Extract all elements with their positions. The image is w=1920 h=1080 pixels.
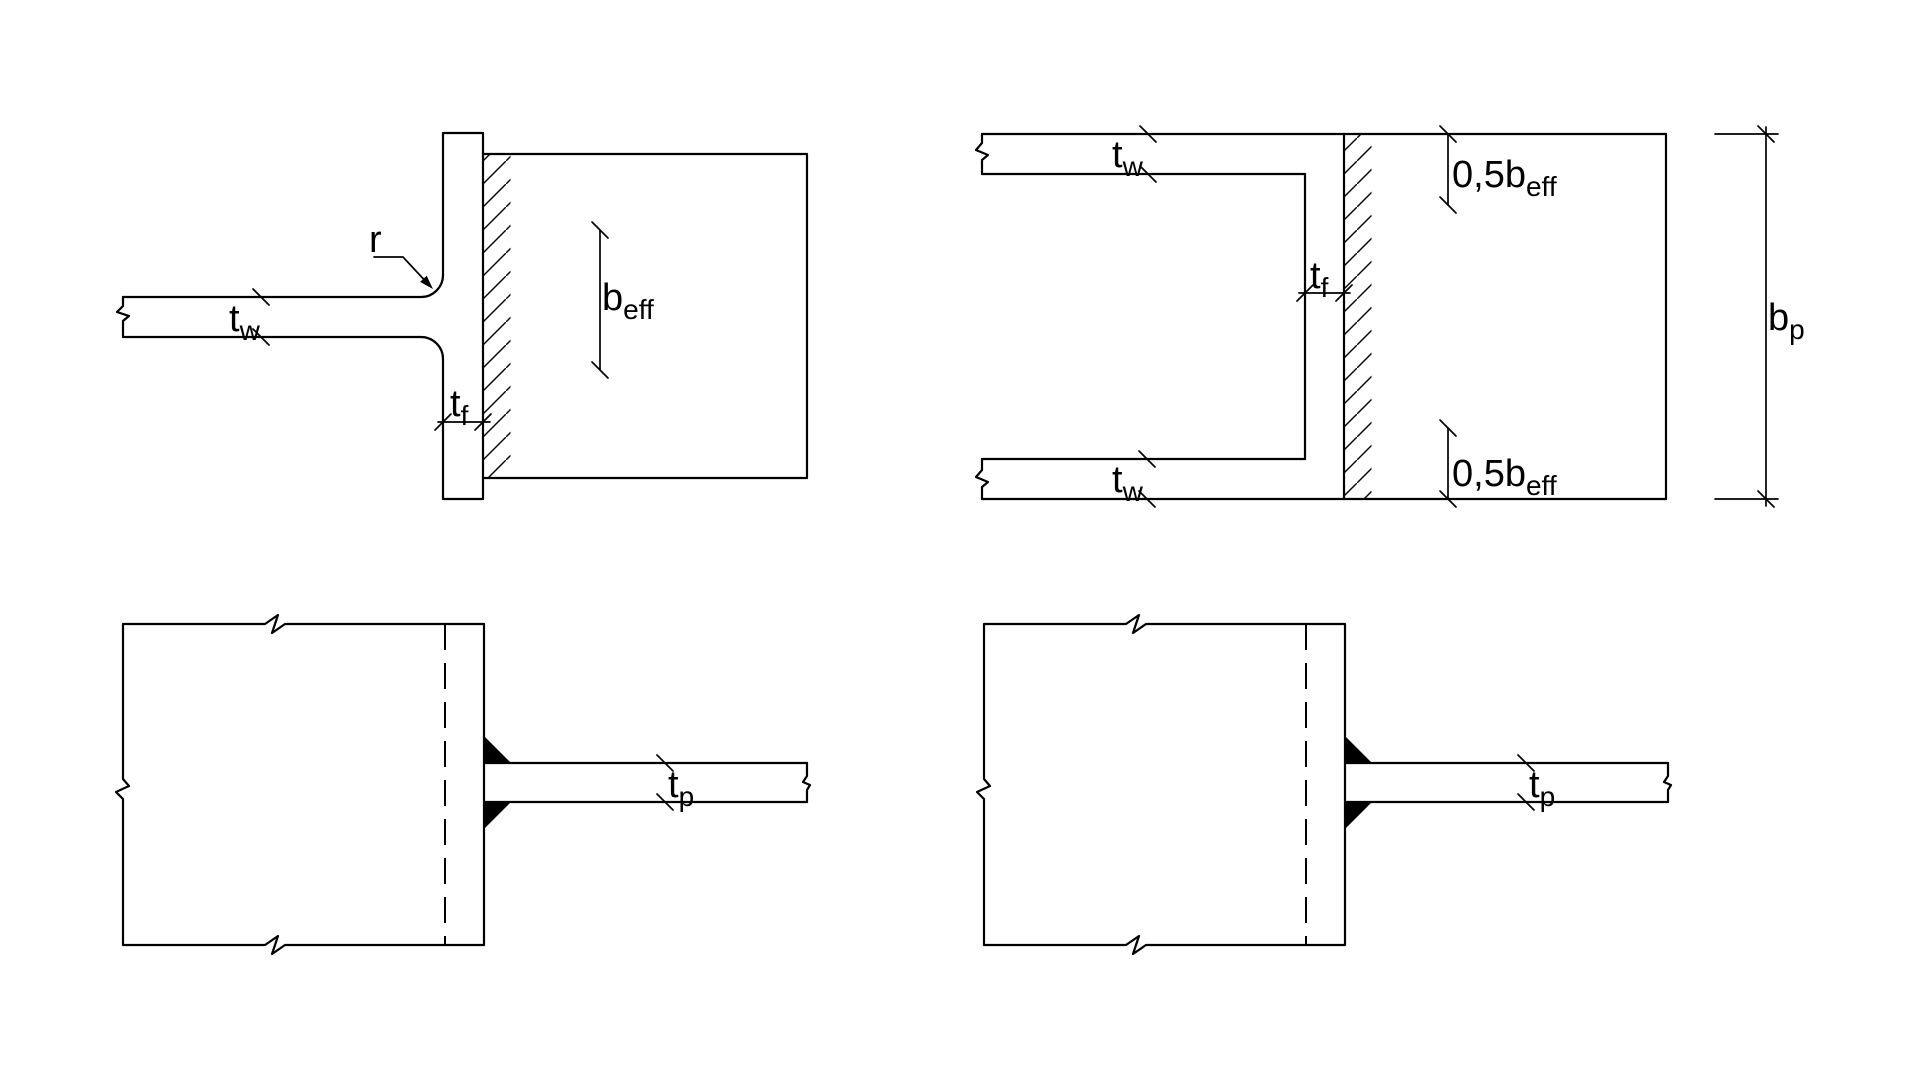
web-break-edge: [117, 297, 129, 337]
figure-i-section-weld: tw r beff tf: [117, 133, 807, 499]
hatch-weld-contact-zone: [1345, 134, 1372, 499]
label-half-effective-width-bottom: 0,5beff: [1452, 453, 1557, 501]
label-half-effective-width-top: 0,5beff: [1452, 154, 1557, 202]
label-plate-thickness: tp: [668, 764, 694, 812]
fillet-weld-bottom: [1345, 802, 1372, 829]
technical-drawing-page: tw r beff tf tw tw: [0, 0, 1920, 1080]
figure-rhs-section-weld: tw tw tf 0,5beff 0,5beff bp: [976, 126, 1805, 507]
member-outline-with-breaks: [977, 615, 1345, 954]
label-effective-width: beff: [602, 277, 654, 325]
figure-plate-fillet-weld-right: tp: [977, 615, 1671, 954]
web-top-line-with-fillet: [123, 275, 443, 297]
member-outline-with-breaks: [116, 615, 484, 954]
label-web-thickness: tw: [229, 298, 261, 346]
plate-break-edge: [803, 763, 810, 802]
flange-outline: [443, 133, 483, 499]
top-wall-break-edge: [976, 134, 988, 174]
label-web-thickness-top: tw: [1112, 134, 1144, 182]
bottom-wall-break-edge: [976, 459, 988, 499]
plate-break-edge: [1664, 763, 1671, 802]
label-web-thickness-bottom: tw: [1112, 459, 1144, 507]
label-flange-thickness: tf: [450, 383, 469, 431]
web-bottom-line-with-fillet: [123, 337, 443, 359]
label-plate-width: bp: [1768, 297, 1805, 345]
fillet-weld-bottom: [484, 802, 511, 829]
drawing-canvas: tw r beff tf tw tw: [0, 0, 1920, 1080]
label-plate-thickness: tp: [1529, 764, 1555, 812]
label-flange-thickness: tf: [1310, 255, 1329, 303]
fillet-weld-top: [484, 736, 511, 763]
hatch-weld-contact-zone: [484, 154, 511, 478]
label-fillet-radius: r: [369, 219, 382, 261]
fillet-weld-top: [1345, 736, 1372, 763]
figure-plate-fillet-weld-left: tp: [116, 615, 810, 954]
